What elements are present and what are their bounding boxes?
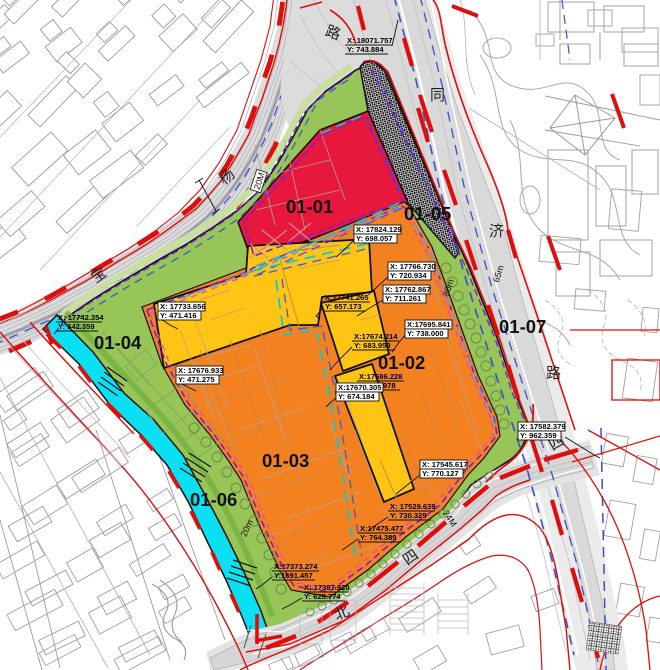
svg-text:X: 17766.730: X: 17766.730: [390, 262, 436, 271]
svg-text:X:17695.841: X:17695.841: [407, 320, 451, 329]
svg-text:X:17686.228: X:17686.228: [359, 372, 403, 381]
svg-text:X:17674.214: X:17674.214: [354, 332, 398, 341]
svg-text:01-01: 01-01: [286, 196, 333, 217]
svg-text:01-02: 01-02: [378, 352, 425, 373]
svg-text:X:17475.477: X:17475.477: [360, 524, 404, 533]
svg-text:01-06: 01-06: [190, 489, 237, 510]
svg-text:Y: 764.389: Y: 764.389: [360, 533, 397, 542]
svg-text:Y: 471.416: Y: 471.416: [160, 311, 197, 320]
svg-text:Y: 720.934: Y: 720.934: [390, 271, 427, 280]
svg-text:Y: 770.127: Y: 770.127: [422, 469, 459, 478]
svg-text:Y: 962.359: Y: 962.359: [520, 431, 557, 440]
svg-text:X:17373.274: X:17373.274: [274, 562, 318, 571]
svg-text:X: 17529.639: X: 17529.639: [390, 502, 436, 511]
svg-text:Y: 342.359: Y: 342.359: [58, 322, 95, 331]
svg-text:Y: 730.329: Y: 730.329: [390, 511, 427, 520]
svg-text:X: 17762.867: X: 17762.867: [385, 285, 431, 294]
svg-text:Y: 683.953: Y: 683.953: [354, 341, 391, 350]
svg-text:Y: 743.884: Y: 743.884: [347, 45, 384, 54]
svg-text:X:17741.265: X:17741.265: [325, 293, 369, 302]
svg-text:Y: 628.774: Y: 628.774: [304, 592, 341, 601]
svg-text:01-04: 01-04: [94, 332, 142, 353]
svg-text:Y: 471.275: Y: 471.275: [178, 375, 215, 384]
svg-text:X: 17582.379: X: 17582.379: [520, 422, 566, 431]
svg-text:Y: 657.173: Y: 657.173: [325, 302, 362, 311]
svg-text:X: 17742.354: X: 17742.354: [58, 313, 104, 322]
svg-text:X: 17545.617: X: 17545.617: [422, 460, 468, 469]
svg-text:路: 路: [546, 365, 561, 382]
svg-text:Y:1691.457: Y:1691.457: [274, 571, 313, 580]
svg-text:01-03: 01-03: [262, 450, 309, 471]
svg-text:Y: 674.184: Y: 674.184: [338, 392, 375, 401]
svg-text:济: 济: [489, 223, 504, 240]
svg-text:X: 18071.757: X: 18071.757: [347, 36, 393, 45]
svg-text:X: 17733.656: X: 17733.656: [160, 302, 206, 311]
svg-text:Y: 738.000: Y: 738.000: [407, 329, 444, 338]
svg-text:X: 17676.933: X: 17676.933: [178, 366, 224, 375]
svg-text:Y: 698.057: Y: 698.057: [356, 234, 393, 243]
svg-text:X:17670.305: X:17670.305: [338, 383, 382, 392]
svg-text:同: 同: [430, 87, 445, 104]
svg-text:01-07: 01-07: [499, 316, 546, 337]
svg-text:Y: 711.261: Y: 711.261: [385, 294, 422, 303]
svg-text:01-05: 01-05: [404, 203, 451, 224]
svg-text:X: 17387.920: X: 17387.920: [304, 583, 350, 592]
svg-text:X: 17824.129: X: 17824.129: [356, 225, 402, 234]
